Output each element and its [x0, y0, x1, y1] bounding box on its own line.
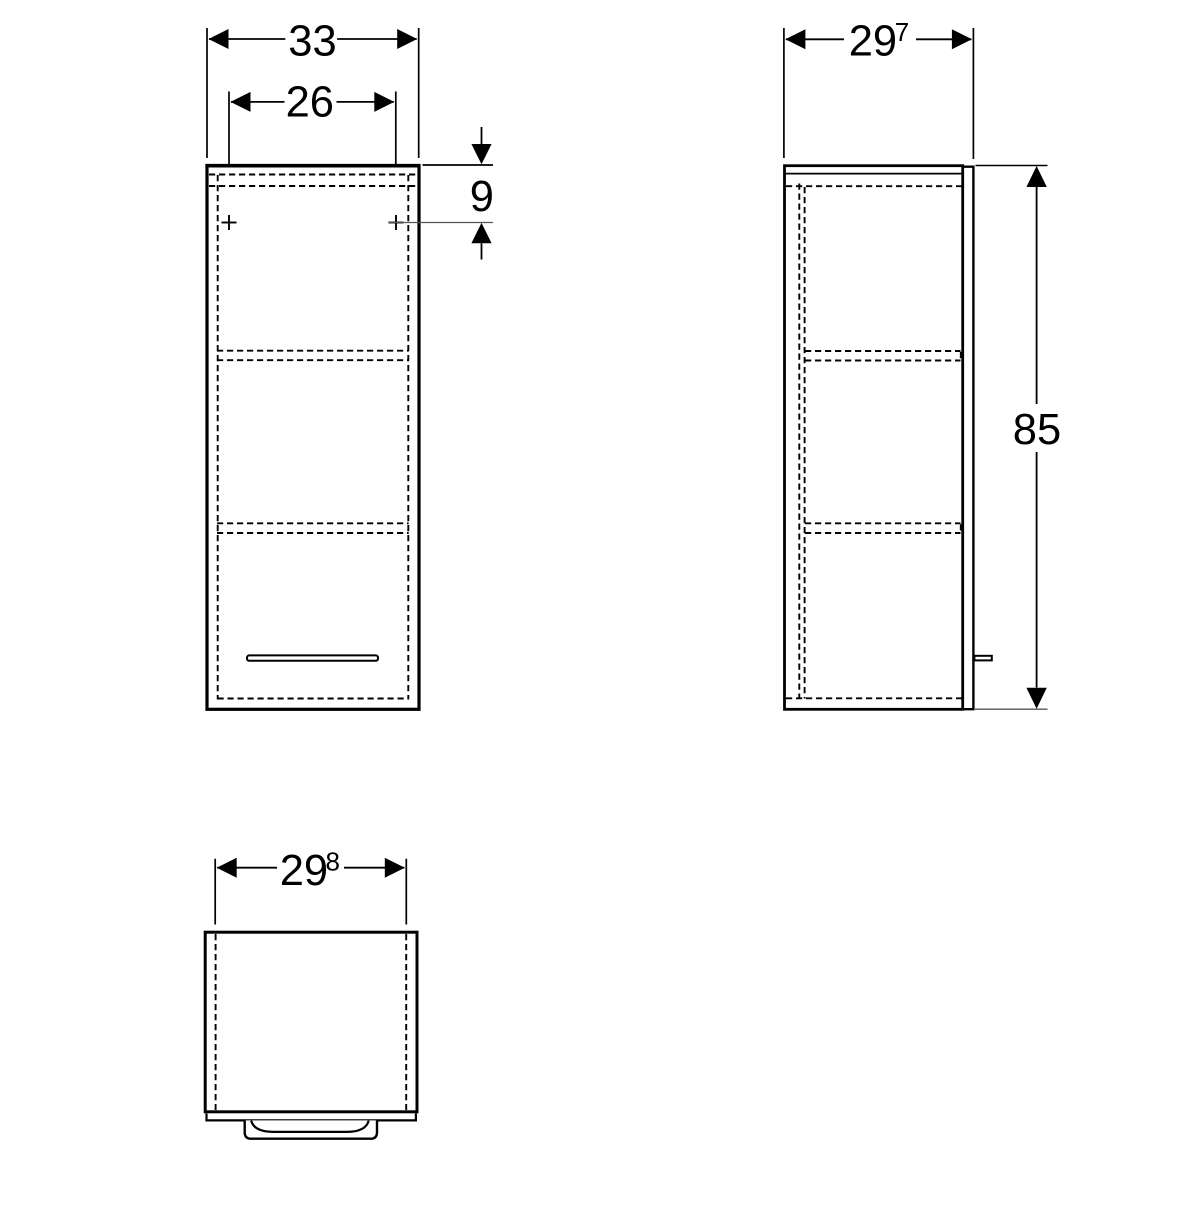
svg-text:33: 33	[288, 17, 336, 65]
svg-text:29: 29	[849, 17, 897, 65]
svg-text:8: 8	[326, 846, 340, 876]
svg-text:29: 29	[280, 847, 328, 895]
svg-text:85: 85	[1013, 406, 1061, 454]
svg-text:7: 7	[895, 17, 909, 47]
svg-text:9: 9	[470, 173, 494, 221]
svg-text:26: 26	[286, 78, 334, 126]
